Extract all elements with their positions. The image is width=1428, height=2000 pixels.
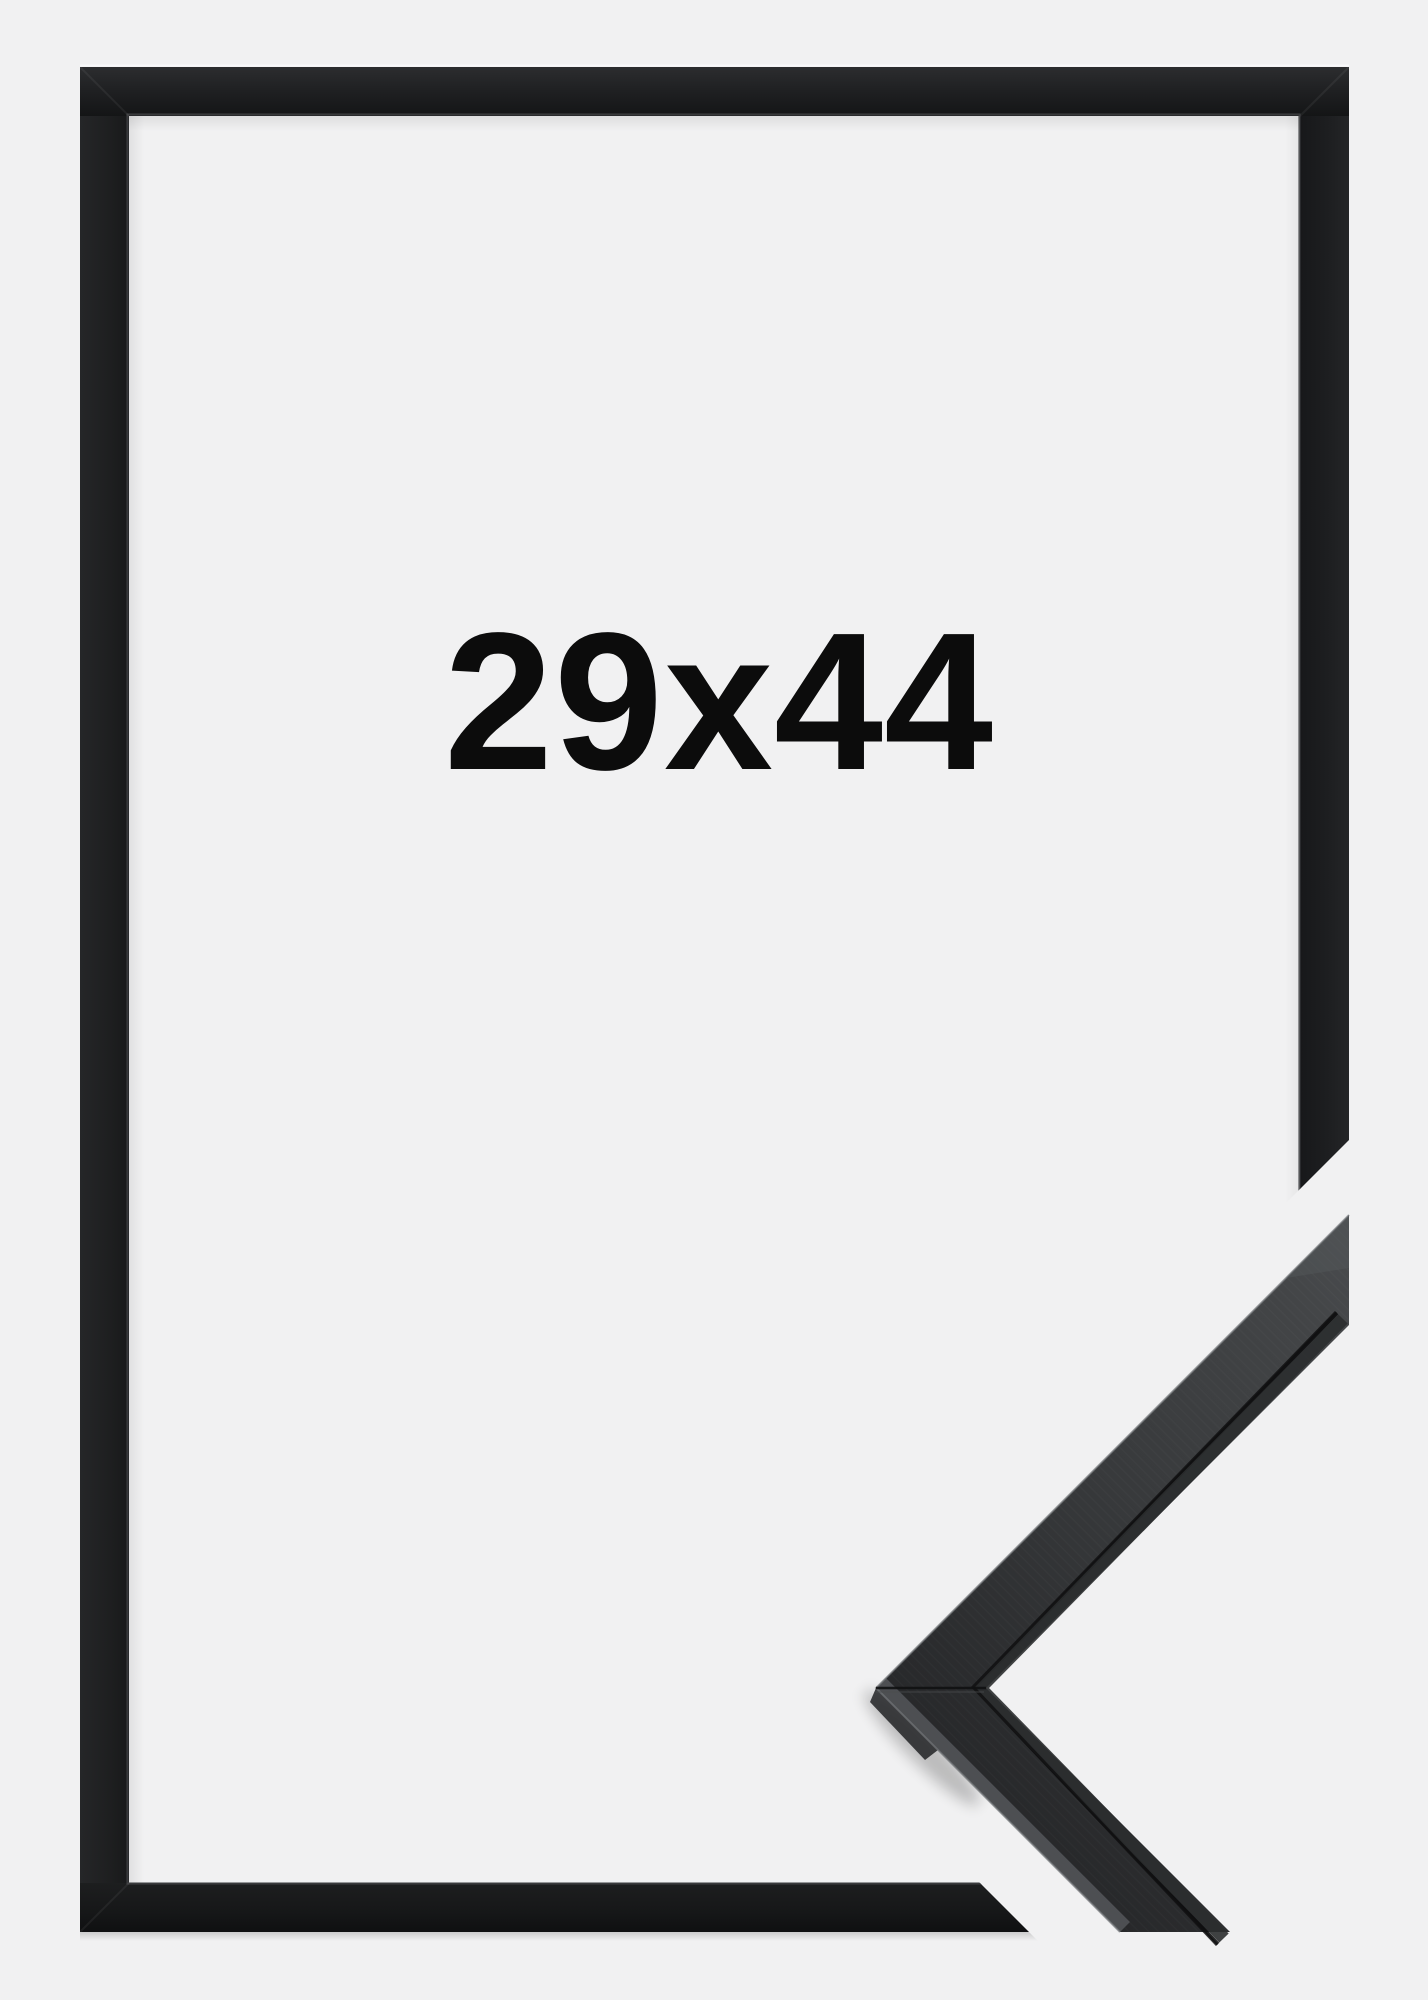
frame-left-bar <box>80 116 129 1883</box>
background <box>0 0 1428 2000</box>
frame-top-bar <box>80 67 1349 116</box>
product-photo-frame[interactable]: 29x44 <box>0 0 1428 2000</box>
size-label: 29x44 <box>444 604 994 800</box>
frame-outer-highlight <box>80 65 1349 67</box>
frame-photo-svg <box>0 0 1428 2000</box>
mat-shadow-left <box>129 116 144 1883</box>
mat-shadow-top <box>129 116 1300 131</box>
